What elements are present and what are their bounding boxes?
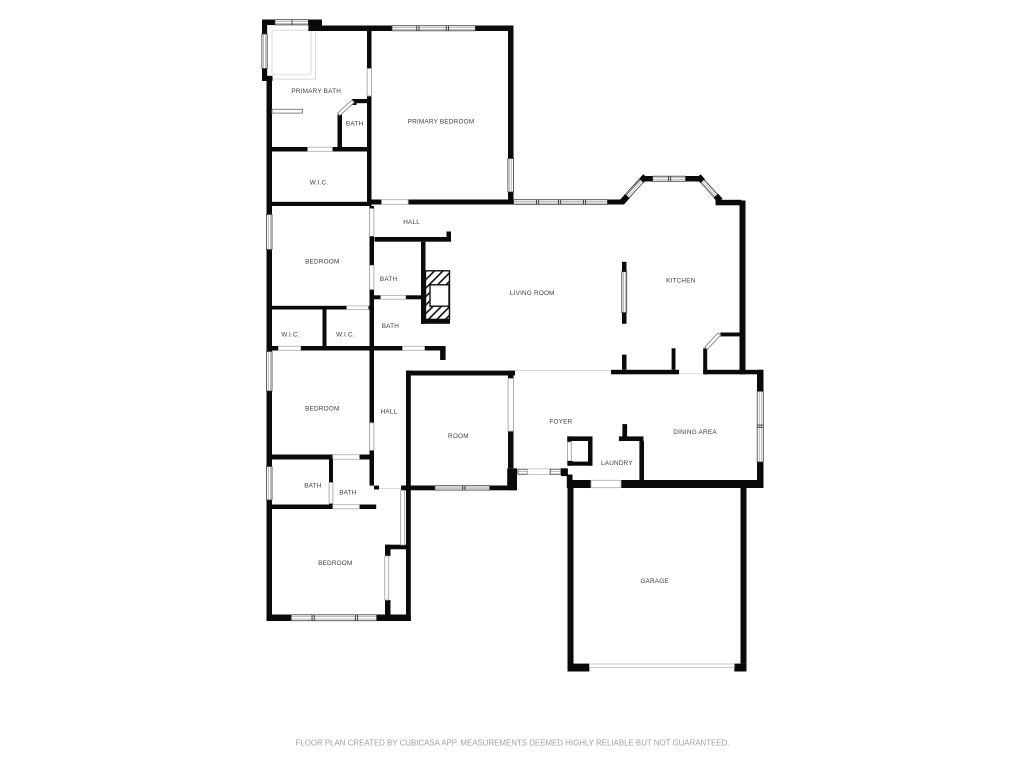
svg-text:BATH: BATH	[380, 276, 398, 283]
svg-text:BATH: BATH	[382, 323, 400, 330]
svg-text:W.I.C.: W.I.C.	[310, 180, 329, 187]
svg-text:FOYER: FOYER	[549, 418, 572, 425]
svg-text:BEDROOM: BEDROOM	[305, 258, 339, 265]
svg-text:BATH: BATH	[304, 483, 322, 490]
svg-text:HALL: HALL	[381, 409, 398, 416]
svg-text:BATH: BATH	[346, 121, 364, 128]
svg-text:PRIMARY BATH: PRIMARY BATH	[291, 88, 341, 95]
svg-text:BATH: BATH	[339, 489, 357, 496]
svg-text:W.I.C.: W.I.C.	[281, 331, 300, 338]
svg-text:BEDROOM: BEDROOM	[318, 560, 352, 567]
svg-text:BEDROOM: BEDROOM	[305, 406, 339, 413]
svg-text:ROOM: ROOM	[448, 433, 469, 440]
svg-text:HALL: HALL	[403, 219, 420, 226]
svg-text:GARAGE: GARAGE	[640, 578, 669, 585]
svg-text:LIVING ROOM: LIVING ROOM	[510, 290, 555, 297]
svg-text:FLOOR PLAN CREATED BY CUBICASA: FLOOR PLAN CREATED BY CUBICASA APP. MEAS…	[296, 739, 730, 748]
svg-text:W.I.C.: W.I.C.	[336, 332, 355, 339]
svg-text:LAUNDRY: LAUNDRY	[601, 460, 633, 467]
svg-text:DINING AREA: DINING AREA	[673, 429, 717, 436]
svg-text:PRIMARY BEDROOM: PRIMARY BEDROOM	[408, 118, 475, 125]
svg-text:KITCHEN: KITCHEN	[666, 278, 696, 285]
